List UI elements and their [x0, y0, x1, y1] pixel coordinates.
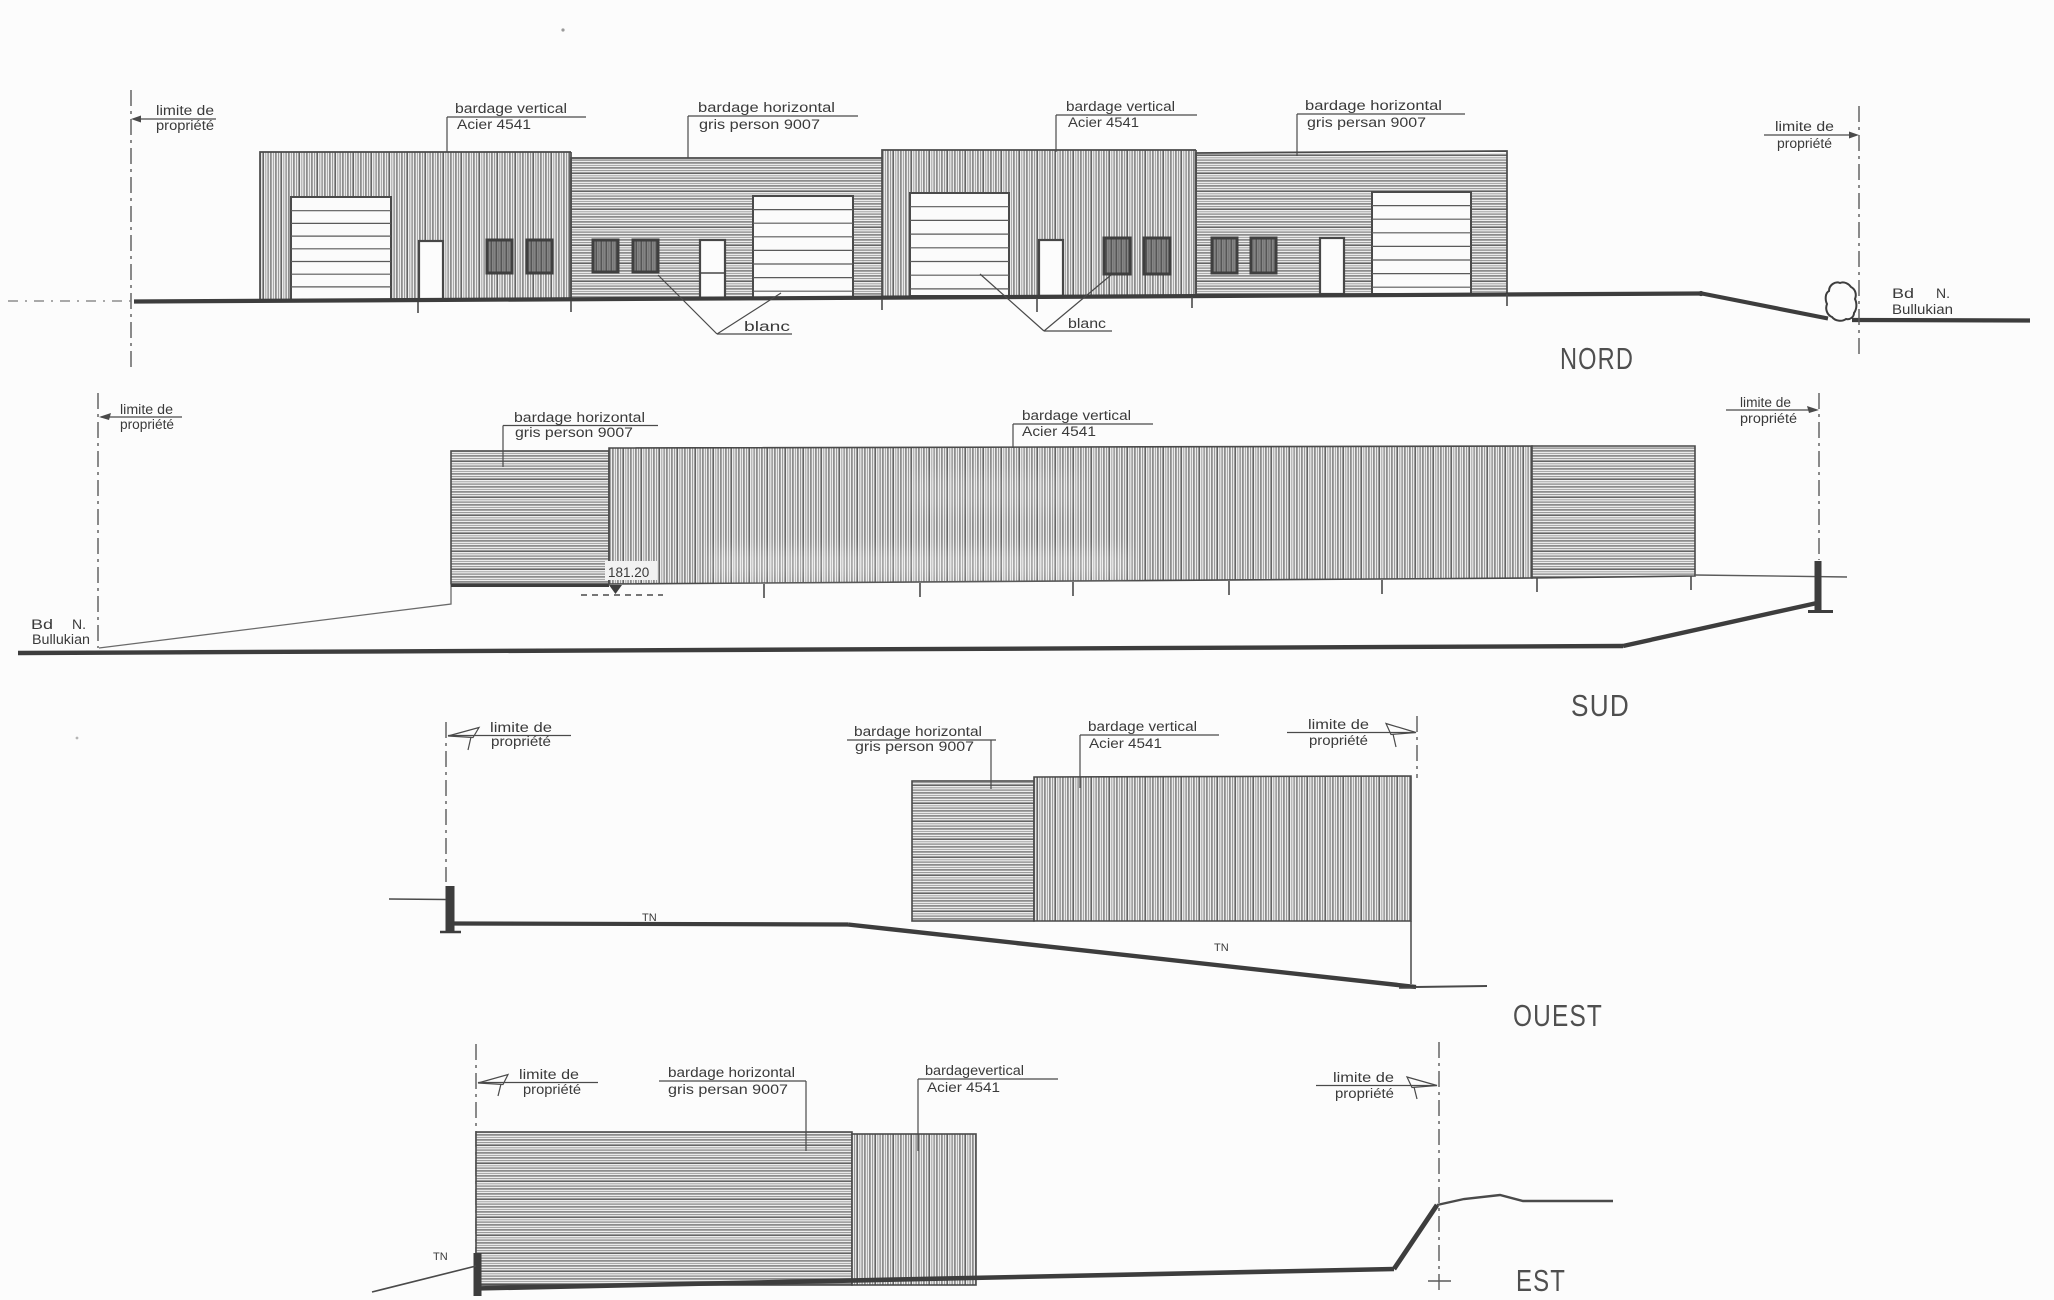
svg-text:N.: N.	[1936, 286, 1950, 301]
svg-text:Bullukian: Bullukian	[1892, 302, 1953, 317]
svg-text:bardage vertical: bardage vertical	[1066, 99, 1175, 114]
svg-text:Acier 4541: Acier 4541	[927, 1080, 1000, 1095]
svg-text:propriété: propriété	[120, 417, 174, 432]
svg-text:propriété: propriété	[1777, 136, 1832, 151]
svg-text:limite de: limite de	[156, 103, 214, 118]
svg-text:limite de: limite de	[120, 402, 173, 417]
svg-text:bardage horizontal: bardage horizontal	[854, 724, 982, 739]
svg-text:blanc: blanc	[1068, 316, 1106, 331]
svg-text:TN: TN	[642, 912, 657, 924]
svg-text:181.20: 181.20	[608, 565, 649, 580]
svg-text:N.: N.	[72, 617, 86, 632]
svg-text:propriété: propriété	[1740, 411, 1797, 426]
svg-text:propriété: propriété	[1309, 733, 1368, 748]
svg-text:bardage vertical: bardage vertical	[1088, 719, 1197, 734]
svg-text:propriété: propriété	[156, 118, 214, 133]
svg-text:limite de: limite de	[490, 720, 552, 735]
svg-text:propriété: propriété	[523, 1082, 581, 1097]
svg-text:bardage vertical: bardage vertical	[1022, 408, 1131, 423]
svg-text:Acier 4541: Acier 4541	[1022, 424, 1096, 439]
svg-text:limite de: limite de	[1775, 119, 1834, 134]
svg-text:limite de: limite de	[1333, 1070, 1394, 1085]
svg-text:blanc: blanc	[744, 319, 790, 334]
svg-text:bardage horizontal: bardage horizontal	[698, 100, 835, 115]
svg-text:propriété: propriété	[491, 734, 551, 749]
svg-text:bardage horizontal: bardage horizontal	[668, 1065, 795, 1080]
svg-text:SUD: SUD	[1571, 688, 1630, 723]
svg-text:Bd: Bd	[1892, 286, 1914, 301]
svg-text:limite de: limite de	[519, 1067, 579, 1082]
svg-text:bardage horizontal: bardage horizontal	[1305, 98, 1442, 113]
svg-text:limite de: limite de	[1308, 717, 1369, 732]
svg-text:OUEST: OUEST	[1513, 998, 1603, 1033]
svg-text:NORD: NORD	[1560, 341, 1634, 376]
svg-text:gris person 9007: gris person 9007	[515, 425, 633, 440]
svg-text:bardagevertical: bardagevertical	[925, 1063, 1024, 1078]
svg-text:propriété: propriété	[1335, 1086, 1394, 1101]
svg-text:Acier 4541: Acier 4541	[1089, 736, 1162, 751]
svg-text:TN: TN	[433, 1251, 448, 1263]
svg-text:Acier 4541: Acier 4541	[1068, 115, 1139, 130]
svg-text:gris persan 9007: gris persan 9007	[668, 1082, 788, 1097]
svg-text:Acier 4541: Acier 4541	[457, 117, 531, 132]
svg-text:gris persan 9007: gris persan 9007	[1307, 115, 1426, 130]
svg-text:limite de: limite de	[1740, 395, 1791, 410]
svg-text:bardage horizontal: bardage horizontal	[514, 410, 645, 425]
svg-text:EST: EST	[1516, 1263, 1566, 1298]
svg-text:TN: TN	[1214, 942, 1229, 954]
svg-text:bardage vertical: bardage vertical	[455, 101, 567, 116]
svg-text:Bd: Bd	[31, 617, 53, 632]
svg-text:gris person 9007: gris person 9007	[855, 739, 974, 754]
svg-text:gris person 9007: gris person 9007	[699, 117, 820, 132]
svg-text:Bullukian: Bullukian	[32, 632, 90, 647]
